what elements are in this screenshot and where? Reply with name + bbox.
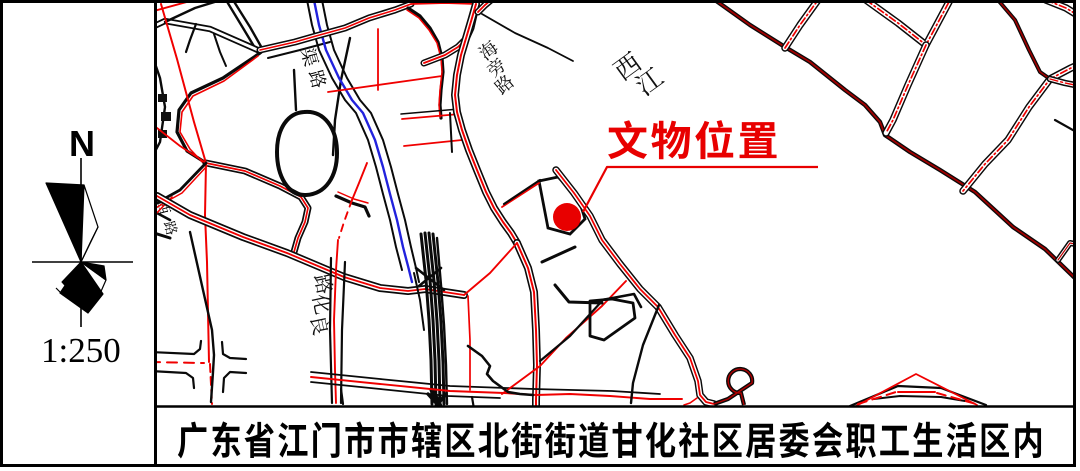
- svg-text:1:250: 1:250: [41, 331, 121, 370]
- svg-text:N: N: [69, 123, 95, 164]
